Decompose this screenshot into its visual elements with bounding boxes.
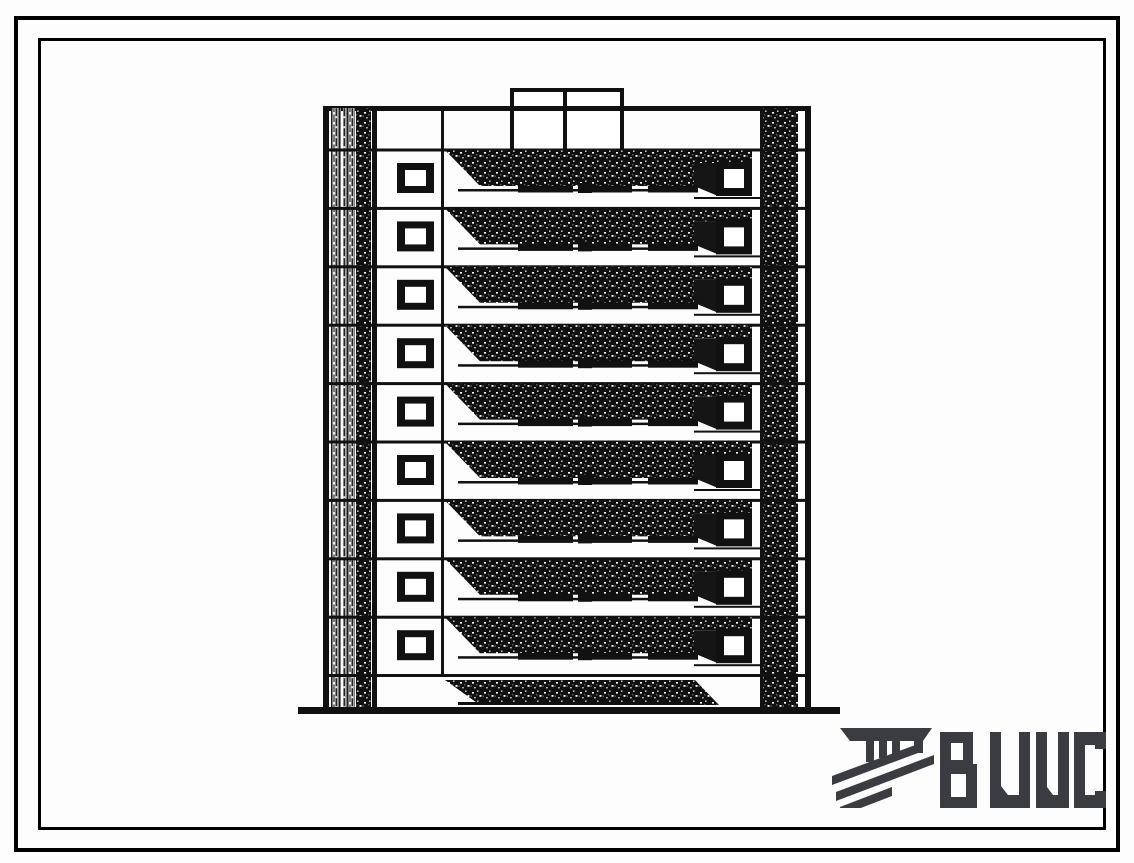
catalog-sheet: ВЦИС (0, 0, 1134, 863)
building-floors (323, 149, 811, 706)
building-elevation-drawing (290, 80, 850, 725)
vcis-logo-icon (830, 726, 938, 808)
vcis-logo-text-value: ВЦИС (828, 724, 829, 725)
vcis-logo-letters (940, 732, 1106, 808)
vcis-logo: ВЦИС (828, 724, 1106, 816)
